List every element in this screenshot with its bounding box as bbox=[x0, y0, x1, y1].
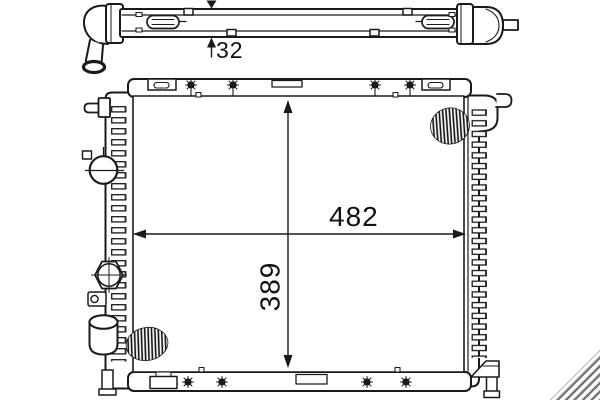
mounting-bolt-icon bbox=[183, 377, 194, 388]
mounting-bolt-icon bbox=[370, 80, 381, 91]
mounting-bolt-icon bbox=[217, 377, 228, 388]
mounting-bolt-icon bbox=[401, 377, 412, 388]
mounting-bolt-icon bbox=[405, 80, 416, 91]
mounting-bolt-icon bbox=[362, 377, 373, 388]
depth-dimension-label: 32 bbox=[216, 39, 244, 62]
inlet-stub-left-icon bbox=[85, 104, 99, 113]
height-dimension-label: 389 bbox=[257, 256, 286, 318]
mounting-tab-icon bbox=[88, 292, 106, 306]
radiator-front-view bbox=[83, 79, 512, 398]
top-view-end-cap bbox=[457, 4, 518, 44]
right-tank-ribs bbox=[472, 108, 488, 358]
outlet-pipe-icon bbox=[90, 315, 118, 354]
drawing-canvas bbox=[0, 0, 600, 400]
left-foot-pin bbox=[99, 370, 116, 395]
width-dimension-label: 482 bbox=[329, 203, 379, 231]
outlet-stub-right-icon bbox=[496, 94, 512, 107]
top-view-inlet-elbow bbox=[84, 4, 124, 73]
mounting-bolt-icon bbox=[186, 80, 197, 91]
radiator-top-view bbox=[84, 1, 519, 73]
radiator-technical-drawing: 32 482 389 bbox=[0, 0, 600, 400]
mounting-bolt-icon bbox=[228, 80, 239, 91]
